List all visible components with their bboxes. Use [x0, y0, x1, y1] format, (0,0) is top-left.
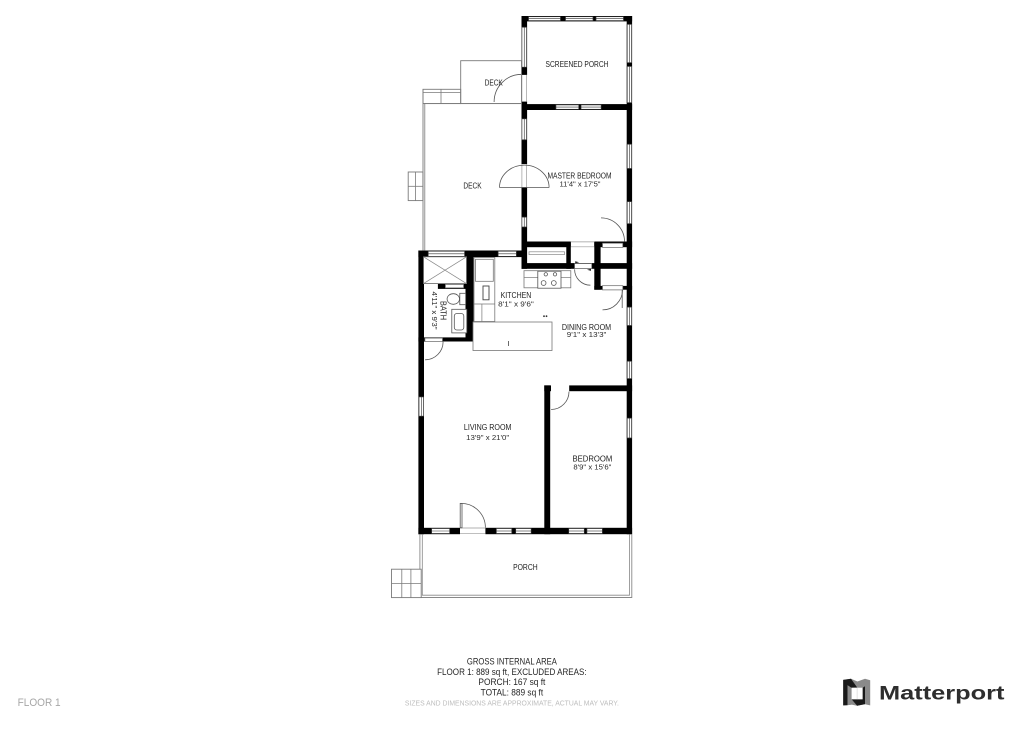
svg-text:DECK: DECK	[463, 181, 482, 190]
svg-text:8'1" x 9'6": 8'1" x 9'6"	[498, 299, 534, 308]
svg-text:PORCH: 167 sq ft: PORCH: 167 sq ft	[478, 677, 545, 687]
svg-text:SIZES AND DIMENSIONS ARE APPRO: SIZES AND DIMENSIONS ARE APPROXIMATE, AC…	[405, 701, 619, 708]
svg-text:4'11" x 9'3": 4'11" x 9'3"	[430, 292, 439, 330]
svg-text:9'1" x 13'3": 9'1" x 13'3"	[567, 330, 607, 339]
svg-text:13'9" x 21'0": 13'9" x 21'0"	[466, 433, 509, 442]
svg-text:Matterport: Matterport	[879, 683, 1005, 705]
svg-text:LIVING ROOM: LIVING ROOM	[464, 423, 512, 432]
svg-text:FLOOR 1: FLOOR 1	[18, 697, 61, 709]
svg-text:FLOOR 1: 889 sq ft, EXCLUDED A: FLOOR 1: 889 sq ft, EXCLUDED AREAS:	[437, 667, 587, 677]
svg-text:PORCH: PORCH	[513, 563, 538, 572]
svg-text:GROSS INTERNAL AREA: GROSS INTERNAL AREA	[467, 657, 557, 667]
svg-text:TOTAL: 889 sq ft: TOTAL: 889 sq ft	[481, 688, 544, 698]
svg-text:SCREENED PORCH: SCREENED PORCH	[546, 60, 609, 69]
svg-text:11'4" x 17'5": 11'4" x 17'5"	[560, 179, 601, 188]
svg-text:DECK: DECK	[485, 78, 504, 87]
svg-text:8'9" x 15'6": 8'9" x 15'6"	[573, 462, 611, 471]
